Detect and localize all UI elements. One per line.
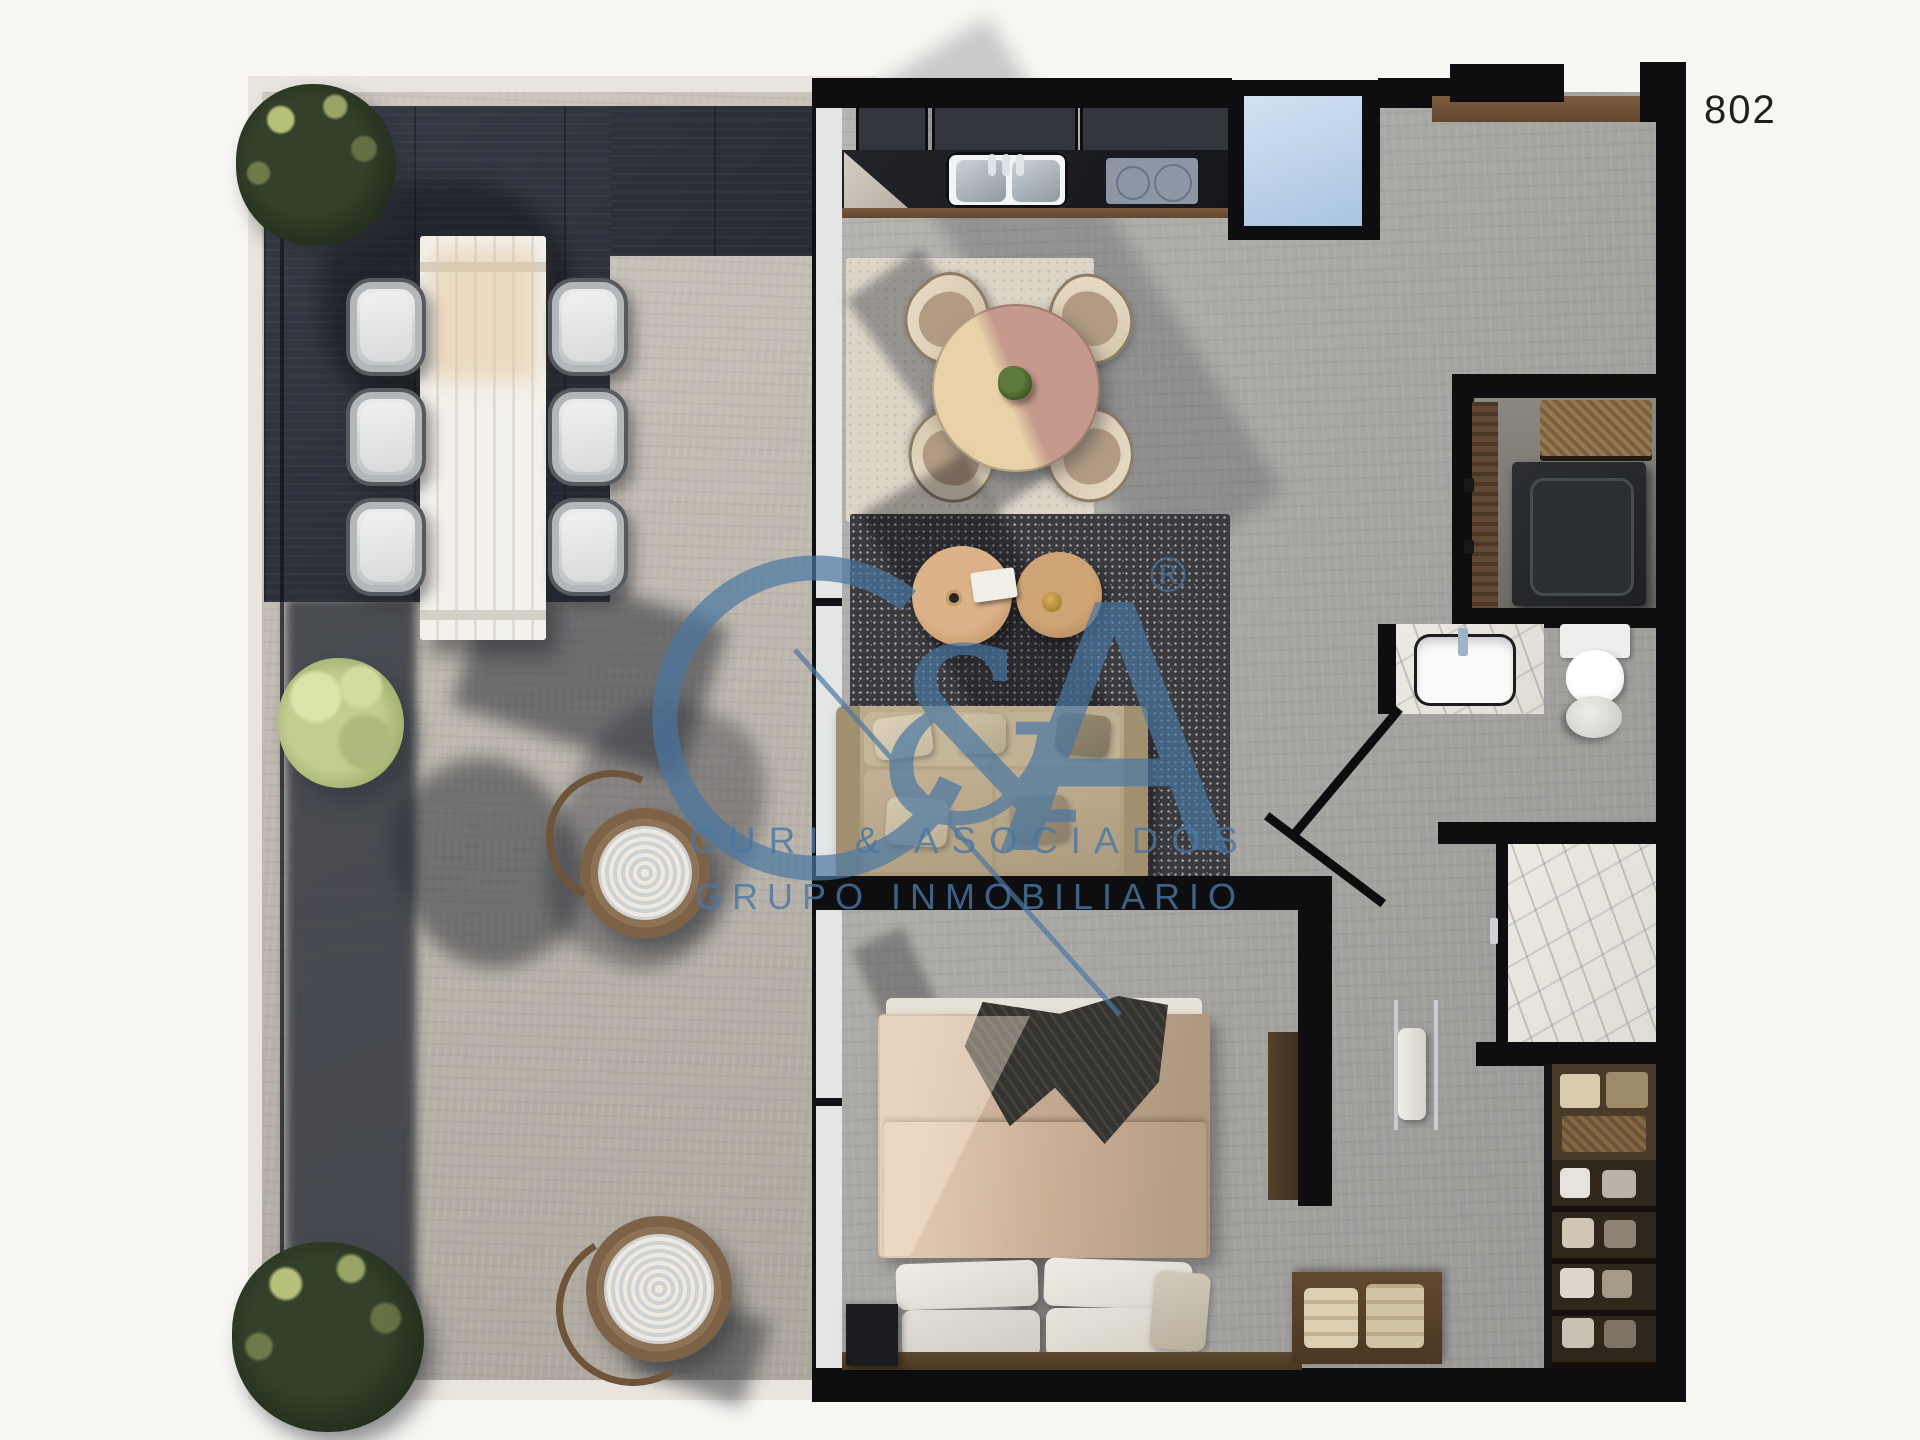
watermark-line1: CURI & ASOCIADOS bbox=[600, 820, 1340, 862]
shoe-rack-item bbox=[1562, 1318, 1594, 1348]
closet-divider bbox=[1544, 1064, 1552, 1368]
right-wall bbox=[1656, 62, 1686, 1402]
outdoor-chair bbox=[346, 388, 426, 486]
shoe-rack-item bbox=[1604, 1220, 1636, 1248]
door-handle bbox=[1464, 478, 1474, 492]
shelf-basket bbox=[1562, 1116, 1646, 1152]
shoe-rack-item bbox=[1562, 1218, 1594, 1248]
kitchen-upper-cabinet bbox=[932, 104, 1078, 156]
monogram-graphic: & A ® bbox=[620, 500, 1320, 1060]
top-wall bbox=[812, 78, 1232, 108]
headboard-wood-strip bbox=[842, 1352, 1302, 1370]
tree bbox=[278, 658, 404, 788]
kitchen-upper-cabinet bbox=[1080, 104, 1238, 156]
closet-towel-stack bbox=[1304, 1288, 1358, 1348]
monogram-a: A bbox=[998, 535, 1232, 931]
utility-left-wall bbox=[1452, 374, 1474, 628]
bed-pillow bbox=[902, 1310, 1040, 1358]
registered-mark: ® bbox=[1144, 548, 1192, 604]
window-glass bbox=[1244, 96, 1362, 226]
bottom-wall bbox=[812, 1368, 1686, 1402]
shoe-rack-item bbox=[1560, 1268, 1594, 1298]
nightstand bbox=[846, 1304, 898, 1366]
utility-top-wall bbox=[1452, 374, 1656, 398]
bed-pillow bbox=[895, 1260, 1039, 1311]
watermark-line2: GRUPO INMOBILIARIO bbox=[600, 876, 1340, 918]
outdoor-chair bbox=[548, 278, 628, 376]
towel bbox=[1398, 1028, 1426, 1120]
utility-shelf-basket bbox=[1540, 400, 1652, 456]
table-plant bbox=[998, 366, 1032, 400]
tree bbox=[232, 1242, 424, 1432]
shelf-towel bbox=[1606, 1072, 1648, 1108]
terrace-table-sun-patch bbox=[430, 250, 536, 380]
bath-stool bbox=[1566, 696, 1622, 738]
kitchen-counter-wood-edge bbox=[842, 208, 1238, 218]
shower-floor bbox=[1508, 844, 1656, 1042]
outdoor-chair bbox=[548, 498, 628, 596]
closet-louver-door bbox=[1472, 402, 1498, 612]
kitchen-sink-bowl bbox=[1012, 160, 1060, 202]
unit-number-label: 802 bbox=[1704, 88, 1777, 133]
outdoor-chair bbox=[548, 388, 628, 486]
bed-accent-pillow bbox=[1149, 1270, 1212, 1353]
washer-door bbox=[1530, 478, 1634, 596]
shelf-towel bbox=[1560, 1074, 1600, 1108]
shower-bottom-wall bbox=[1476, 1042, 1658, 1066]
watermark-logo: & A ® bbox=[620, 500, 1320, 1060]
kitchen-sink-bowl bbox=[956, 160, 1006, 202]
kitchen-upper-cabinet bbox=[856, 104, 928, 156]
door-handle bbox=[1464, 540, 1474, 554]
terrace-table-endcap-bottom bbox=[420, 610, 546, 620]
cooktop-burner bbox=[1116, 166, 1150, 200]
vanity-side-wall bbox=[1378, 624, 1398, 714]
shoe-rack-item bbox=[1560, 1168, 1590, 1198]
floor-plan-unit-802: & A ® CURI & ASOCIADOS GRUPO INMOBILIARI… bbox=[0, 0, 1920, 1440]
shoe-rack-item bbox=[1602, 1170, 1636, 1198]
shoe-rack-item bbox=[1602, 1270, 1632, 1298]
closet-towel-stack bbox=[1366, 1284, 1424, 1348]
glass-wall-mullion bbox=[812, 1098, 842, 1106]
entry-door-leaf bbox=[1450, 64, 1564, 102]
shoe-rack-item bbox=[1604, 1320, 1636, 1348]
outdoor-chair bbox=[346, 278, 426, 376]
outdoor-chair bbox=[346, 498, 426, 596]
shower-handle bbox=[1490, 918, 1498, 944]
kitchen-faucet bbox=[1002, 154, 1010, 176]
tree bbox=[236, 84, 396, 246]
cooktop-burner bbox=[1154, 164, 1192, 202]
sink-faucet bbox=[1458, 628, 1468, 656]
shower-top-wall bbox=[1438, 822, 1658, 844]
shower-glass-frame bbox=[1496, 844, 1508, 1042]
